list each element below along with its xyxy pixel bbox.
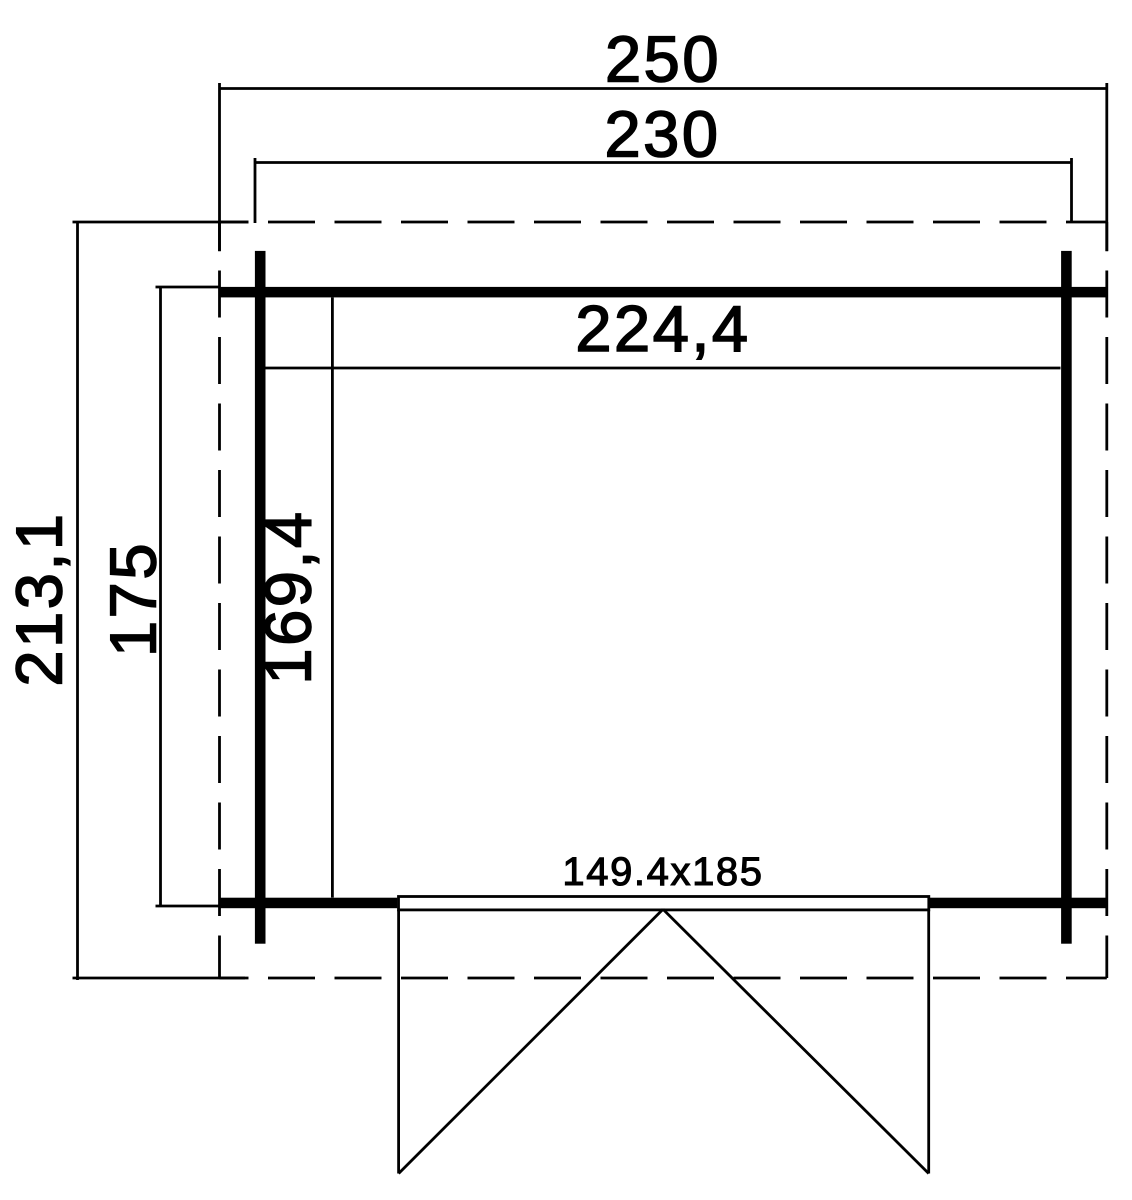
svg-text:230: 230 [605, 98, 721, 171]
svg-text:213,1: 213,1 [3, 511, 76, 686]
svg-text:250: 250 [605, 23, 721, 96]
svg-text:224,4: 224,4 [575, 292, 750, 365]
svg-text:175: 175 [97, 541, 170, 657]
svg-text:149.4x185: 149.4x185 [562, 850, 763, 894]
svg-text:169,4: 169,4 [252, 509, 325, 684]
